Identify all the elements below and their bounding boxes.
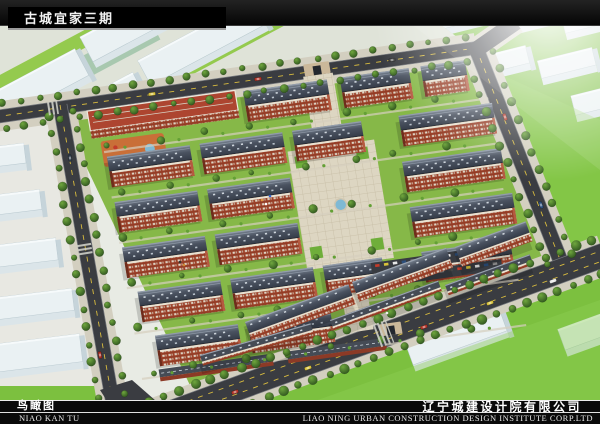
project-title-banner: 古城宜家三期 — [8, 7, 226, 30]
drawing-label-pinyin: NIAO KAN TU — [19, 414, 80, 423]
company-name-cn: 辽宁城建设计院有限公司 — [422, 401, 582, 413]
rendering-sheet: 古城宜家三期 鸟瞰图 辽宁城建设计院有限公司 NIAO KAN TU LIAO … — [0, 0, 600, 424]
aerial-rendering — [0, 0, 600, 424]
drawing-label-cn: 鸟瞰图 — [17, 401, 56, 412]
company-name-en: LIAO NING URBAN CONSTRUCTION DESIGN INST… — [303, 414, 593, 423]
title-block-footer: 鸟瞰图 辽宁城建设计院有限公司 NIAO KAN TU LIAO NING UR… — [0, 400, 600, 424]
footer-row-2: NIAO KAN TU LIAO NING URBAN CONSTRUCTION… — [0, 413, 600, 423]
project-title: 古城宜家三期 — [24, 8, 114, 27]
footer-row-1: 鸟瞰图 辽宁城建设计院有限公司 — [0, 401, 600, 413]
